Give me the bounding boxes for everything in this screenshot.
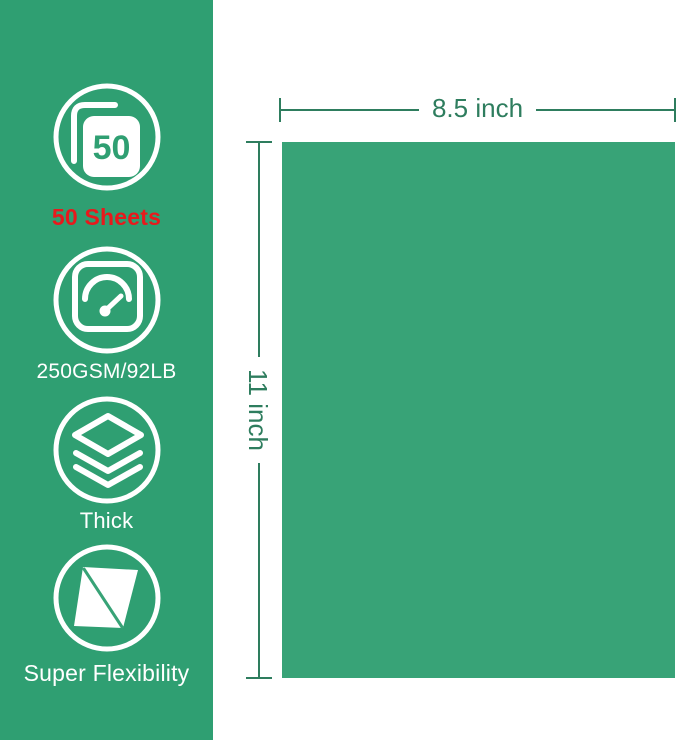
- dimension-line: [281, 109, 419, 111]
- paper-swatch: [282, 142, 675, 678]
- gauge-icon: [52, 245, 162, 355]
- feature-banner: 50 50 Sheets 250GSM/92LB Thick: [0, 0, 213, 740]
- dimension-line: [536, 109, 674, 111]
- height-dimension-label: 11 inch: [245, 357, 271, 463]
- feature-sheet-count: 50 50 Sheets: [0, 82, 213, 230]
- width-dimension: 8.5 inch: [279, 97, 676, 123]
- feature-weight: 250GSM/92LB: [0, 245, 213, 383]
- flexible-sheet-icon: [52, 543, 162, 653]
- feature-label-flexibility: Super Flexibility: [0, 661, 213, 686]
- dimension-line: [258, 143, 260, 357]
- layers-thickness-icon: [52, 395, 162, 505]
- sheet-stack-50-icon: 50: [52, 82, 162, 192]
- dimension-tick-right: [674, 98, 676, 122]
- width-dimension-label: 8.5 inch: [419, 95, 536, 121]
- dimension-line: [258, 463, 260, 677]
- sheet-count-badge: 50: [92, 129, 130, 167]
- feature-label-weight: 250GSM/92LB: [0, 360, 213, 383]
- product-infographic: 50 50 Sheets 250GSM/92LB Thick: [0, 0, 679, 740]
- feature-label-sheet-count: 50 Sheets: [0, 205, 213, 230]
- feature-thickness: Thick: [0, 395, 213, 533]
- height-dimension: 11 inch: [245, 141, 273, 679]
- feature-label-thickness: Thick: [0, 509, 213, 533]
- feature-flexibility: Super Flexibility: [0, 543, 213, 686]
- dimension-tick-bottom: [246, 677, 272, 679]
